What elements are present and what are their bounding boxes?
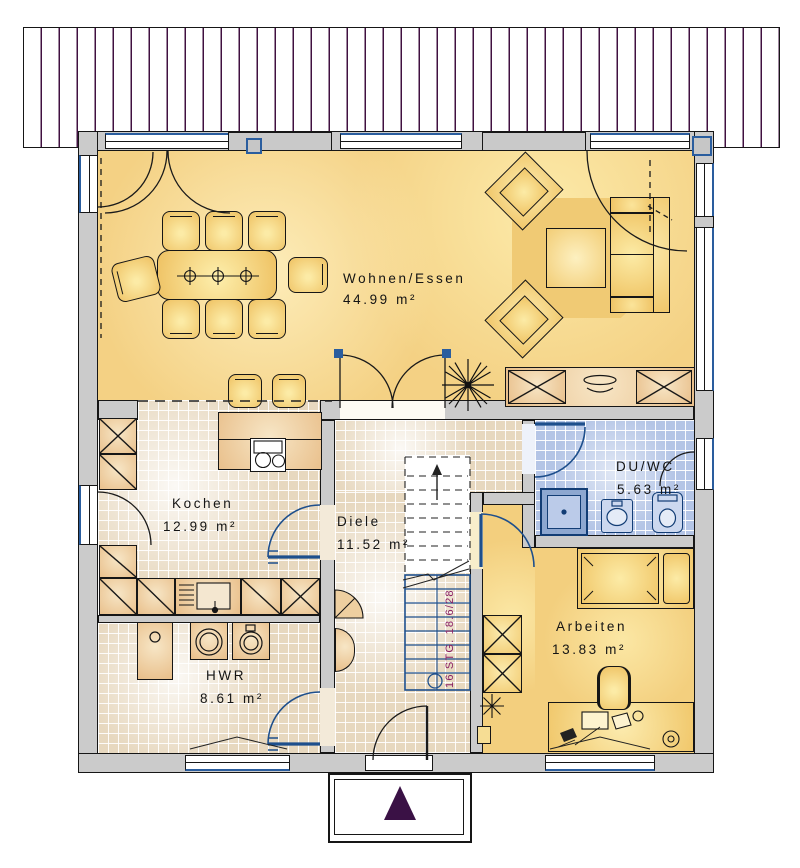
kitchen-sink-counter	[175, 578, 241, 615]
doorway-hwr	[320, 688, 335, 746]
sofa-armrest	[610, 197, 654, 213]
doorway-duwc	[522, 424, 535, 474]
sideboard-cabinet	[636, 370, 692, 404]
window-top-1	[228, 132, 332, 151]
wall-stub	[98, 400, 138, 420]
wall-outer-left	[78, 131, 98, 773]
shower-tray	[547, 495, 581, 529]
sideboard-cabinet	[508, 370, 566, 404]
window-left-wohnen	[79, 155, 98, 213]
bar-stool	[272, 374, 306, 408]
room-area-hwr: 8.61 m²	[200, 692, 264, 706]
wall-duwc-south	[535, 535, 694, 548]
floor-plan: Wohnen/Essen 44.99 m² Kochen 12.99 m² Di…	[0, 0, 800, 868]
terrace-door-top-mid	[340, 133, 462, 149]
window-bottom-hwr	[185, 755, 290, 771]
kitchen-counter	[99, 578, 137, 615]
cooktop	[250, 438, 286, 472]
kitchen-cabinet	[99, 545, 137, 578]
window-bottom-arbeiten	[545, 755, 655, 771]
room-label-kochen: Kochen	[172, 497, 233, 511]
room-label-hwr: HWR	[206, 669, 246, 683]
room-area-kochen: 12.99 m²	[163, 520, 237, 534]
bar-stool	[228, 374, 262, 408]
dining-chair	[288, 257, 328, 293]
room-area-diele: 11.52 m²	[337, 538, 410, 552]
canopy-post-right	[692, 136, 712, 156]
dining-chair	[205, 299, 243, 339]
shower	[540, 488, 588, 536]
tall-cabinet	[99, 418, 137, 454]
canopy-stripes	[23, 27, 780, 148]
doorway-kochen	[320, 505, 335, 560]
doorway-arbeiten	[470, 512, 483, 569]
sofa-seat	[610, 213, 654, 297]
waste-bin	[477, 726, 491, 744]
dryer	[232, 622, 270, 660]
dining-chair	[162, 211, 200, 251]
kitchen-counter	[137, 578, 175, 615]
dining-chair	[248, 299, 286, 339]
room-label-wohnen: Wohnen/Essen	[343, 272, 466, 286]
room-label-duwc: DU/WC	[616, 460, 675, 474]
dishwasher	[281, 578, 320, 615]
wall-arbeiten-north	[483, 492, 535, 505]
daybed-mattress	[581, 553, 659, 604]
kitchen-cabinet	[99, 454, 137, 490]
canopy-post-left	[246, 138, 262, 154]
sofa-armrest	[610, 297, 654, 313]
entrance-doorway	[365, 755, 433, 771]
terrace-door-top-left	[105, 133, 230, 149]
coffee-table	[546, 228, 606, 288]
shelf	[483, 654, 522, 693]
toilet	[652, 492, 683, 533]
dining-chair	[248, 211, 286, 251]
window-mullion	[694, 216, 714, 228]
utility-sink-cabinet	[137, 622, 173, 680]
stairs-upper-flight	[405, 455, 470, 573]
dining-chair	[205, 211, 243, 251]
window-top-2	[482, 132, 586, 151]
room-area-wohnen: 44.99 m²	[343, 293, 417, 307]
room-label-diele: Diele	[337, 515, 381, 529]
daybed-pillow	[663, 553, 690, 604]
entrance-arrow-icon	[384, 786, 416, 820]
terrace-door-top-right	[590, 133, 690, 149]
stairs-label: 16 STG. 18.6/28	[444, 589, 456, 688]
dining-table	[157, 250, 277, 300]
window-right-duwc	[696, 438, 714, 490]
doorway-wohnen-diele	[340, 401, 445, 419]
room-area-duwc: 5.63 m²	[617, 483, 681, 497]
washer	[190, 622, 228, 660]
shelf	[483, 615, 522, 654]
window-right-wohnen	[696, 163, 714, 391]
room-area-arbeiten: 13.83 m²	[552, 643, 626, 657]
room-label-arbeiten: Arbeiten	[556, 620, 627, 634]
washbasin	[601, 499, 633, 533]
dining-chair	[162, 299, 200, 339]
kitchen-counter	[241, 578, 281, 615]
office-chair	[597, 666, 631, 710]
window-left-kochen	[79, 485, 98, 545]
